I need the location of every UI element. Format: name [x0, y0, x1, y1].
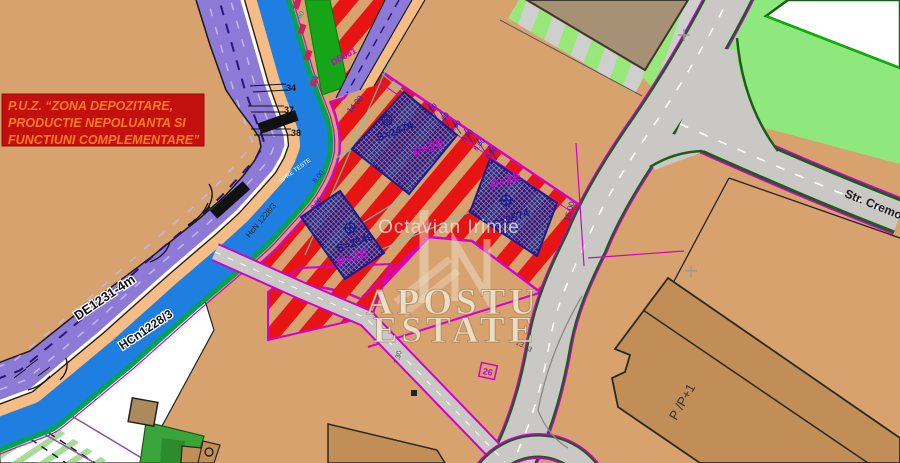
svg-text:FUNCTIUNI COMPLEMENTARE”: FUNCTIUNI COMPLEMENTARE”	[8, 133, 200, 147]
svg-text:PRODUCTIE NEPOLUANTA SI: PRODUCTIE NEPOLUANTA SI	[8, 116, 186, 130]
svg-text:ESTATE: ESTATE	[373, 310, 538, 351]
svg-text:26: 26	[482, 366, 494, 378]
svg-text:P.U.Z. “ZONA DEPOZITARE,: P.U.Z. “ZONA DEPOZITARE,	[8, 99, 173, 113]
svg-text:37: 37	[284, 105, 294, 115]
svg-text:34: 34	[286, 83, 296, 93]
svg-text:38: 38	[291, 128, 301, 138]
svg-text:Octavian Irimie: Octavian Irimie	[378, 217, 520, 238]
